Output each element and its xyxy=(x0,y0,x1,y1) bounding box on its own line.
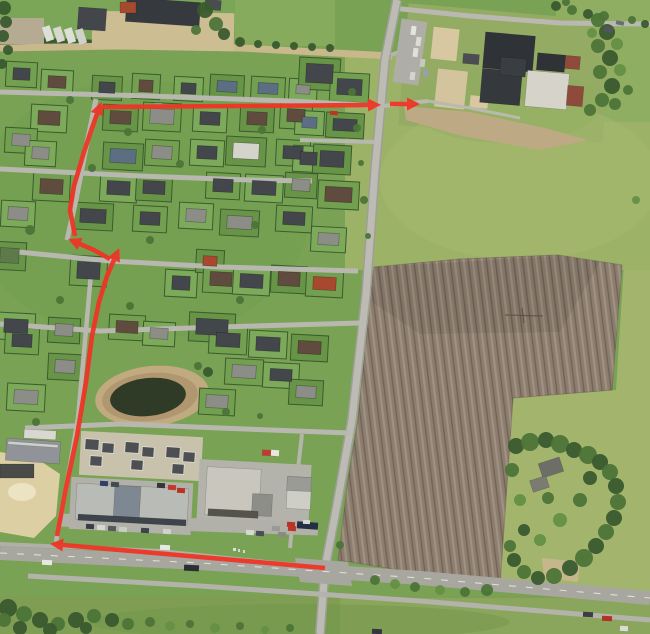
warehouse-office xyxy=(24,429,56,440)
house xyxy=(292,179,311,192)
office-east-roof xyxy=(287,476,312,491)
tree xyxy=(126,302,134,310)
tree xyxy=(595,93,609,107)
tree xyxy=(105,613,119,627)
school-red-1 xyxy=(564,55,580,69)
house xyxy=(320,150,345,167)
tree xyxy=(16,606,32,622)
tree xyxy=(286,624,294,632)
vehicle xyxy=(157,483,165,488)
tree xyxy=(583,471,597,485)
house xyxy=(296,85,310,95)
tree xyxy=(614,64,626,76)
house xyxy=(186,208,207,222)
school-shed xyxy=(463,53,480,64)
school-block-mid xyxy=(499,57,526,77)
house xyxy=(233,142,260,159)
tree xyxy=(348,88,356,96)
tree xyxy=(145,617,155,627)
house xyxy=(296,385,317,398)
tree xyxy=(272,41,280,49)
tree xyxy=(194,362,202,370)
tree xyxy=(370,575,380,585)
vehicle xyxy=(111,482,119,487)
school-block-white xyxy=(525,70,570,110)
tree xyxy=(176,160,184,168)
tree xyxy=(505,463,519,477)
tree xyxy=(623,85,633,95)
house xyxy=(256,336,281,351)
house xyxy=(139,80,154,93)
house xyxy=(206,394,229,408)
house xyxy=(313,276,337,290)
tree xyxy=(507,553,521,567)
aerial-photo xyxy=(0,0,650,634)
house xyxy=(172,276,191,291)
cabin xyxy=(102,443,115,454)
tree xyxy=(514,494,526,506)
house xyxy=(200,111,221,125)
sand-pit-bright xyxy=(8,483,36,501)
tree xyxy=(534,534,546,546)
street-b-conn xyxy=(300,140,375,142)
vehicle xyxy=(238,549,240,552)
highway-junction xyxy=(295,558,352,586)
tree xyxy=(481,584,493,596)
tree xyxy=(290,42,298,50)
house xyxy=(12,333,33,347)
house xyxy=(203,256,218,267)
house xyxy=(270,368,293,381)
house xyxy=(12,134,31,147)
school-block-ne xyxy=(536,53,565,72)
tree xyxy=(261,626,269,634)
cabin xyxy=(131,460,144,471)
vehicle xyxy=(119,527,127,532)
tree xyxy=(218,28,230,40)
tree xyxy=(25,225,35,235)
tree xyxy=(124,128,132,136)
tree xyxy=(353,124,361,132)
tree xyxy=(583,9,593,19)
house xyxy=(306,63,334,83)
tree xyxy=(236,622,244,630)
tree xyxy=(186,620,194,628)
tree xyxy=(257,413,263,419)
vehicle xyxy=(108,526,116,531)
house xyxy=(232,364,257,378)
tree xyxy=(251,221,259,229)
tree xyxy=(609,98,621,110)
house xyxy=(0,248,19,264)
tree xyxy=(575,549,593,567)
house xyxy=(227,215,253,229)
tree xyxy=(326,44,334,52)
house xyxy=(13,68,31,81)
tree xyxy=(504,540,516,552)
tree xyxy=(553,513,567,527)
vehicle xyxy=(160,545,170,551)
tree xyxy=(628,16,636,24)
tree xyxy=(611,38,623,50)
tree xyxy=(32,418,40,426)
vehicle xyxy=(168,485,176,490)
house xyxy=(302,117,318,129)
vehicle xyxy=(100,481,108,486)
tree xyxy=(632,196,640,204)
house xyxy=(181,83,197,95)
aerial-map-screenshot xyxy=(0,0,650,634)
tree xyxy=(146,236,154,244)
house xyxy=(150,108,175,124)
vehicle xyxy=(246,530,254,535)
tree xyxy=(591,39,605,53)
house xyxy=(80,208,107,223)
tree xyxy=(88,164,96,172)
barn-small xyxy=(77,7,106,31)
tree xyxy=(606,510,622,526)
vehicle xyxy=(278,532,286,538)
house xyxy=(55,359,76,373)
house xyxy=(283,211,306,225)
tree xyxy=(602,50,618,66)
tree xyxy=(365,233,371,239)
house xyxy=(300,152,318,166)
vehicle xyxy=(256,531,264,536)
vehicle xyxy=(177,488,185,493)
tree xyxy=(567,5,577,15)
vehicle xyxy=(372,629,382,634)
house xyxy=(278,271,301,286)
house xyxy=(298,340,322,354)
tree xyxy=(518,524,530,536)
tree xyxy=(562,560,578,576)
cabin xyxy=(85,439,100,451)
tree xyxy=(197,2,213,18)
house xyxy=(150,328,169,340)
tree xyxy=(66,96,74,104)
tree xyxy=(599,24,615,40)
tree xyxy=(358,160,364,166)
house xyxy=(240,273,264,288)
tree xyxy=(602,464,618,480)
house xyxy=(252,180,277,195)
tree xyxy=(588,538,604,554)
tree xyxy=(410,582,420,592)
tree xyxy=(573,493,587,507)
house xyxy=(55,324,74,337)
vehicle xyxy=(141,528,149,533)
house xyxy=(258,82,279,94)
cabin xyxy=(90,456,103,467)
vehicle xyxy=(86,524,94,529)
dark-yard xyxy=(0,464,34,478)
cabin xyxy=(183,452,196,463)
tree xyxy=(222,408,230,416)
tree xyxy=(551,1,561,11)
house xyxy=(38,110,61,125)
house xyxy=(110,110,132,124)
tree xyxy=(608,478,624,494)
house xyxy=(143,180,166,194)
house xyxy=(32,147,50,160)
vehicle xyxy=(42,560,52,566)
cabin xyxy=(166,447,181,459)
cabin xyxy=(172,464,185,475)
playground-sand-1 xyxy=(430,27,459,62)
vehicle xyxy=(97,525,105,530)
tree xyxy=(258,126,266,134)
tree xyxy=(165,621,175,631)
tree xyxy=(0,16,12,28)
house xyxy=(197,145,218,159)
tree xyxy=(360,196,368,204)
house xyxy=(152,145,173,159)
house xyxy=(247,111,268,125)
cabin xyxy=(125,442,140,454)
school-red-2 xyxy=(566,85,584,106)
vehicle xyxy=(583,612,593,618)
tree xyxy=(254,40,262,48)
house xyxy=(216,332,241,347)
top-mid-field xyxy=(235,0,335,46)
tree xyxy=(460,587,470,597)
vehicle xyxy=(272,526,280,532)
house xyxy=(40,178,64,194)
house xyxy=(140,211,161,225)
tree xyxy=(587,28,597,38)
house xyxy=(48,76,67,89)
tree xyxy=(3,45,13,55)
tree xyxy=(546,568,562,584)
tree xyxy=(87,609,101,623)
tree xyxy=(542,492,554,504)
tree xyxy=(235,37,245,47)
house xyxy=(110,148,137,163)
tree xyxy=(584,104,596,116)
farm-red-roof xyxy=(120,2,136,13)
vehicle xyxy=(243,550,245,553)
cabin xyxy=(142,447,155,458)
vehicle xyxy=(303,520,310,524)
tree xyxy=(236,296,244,304)
tree xyxy=(531,571,545,585)
route-top-east xyxy=(102,105,368,107)
tree xyxy=(604,78,620,94)
tree xyxy=(122,618,134,630)
tree xyxy=(390,579,400,589)
vehicle xyxy=(271,450,279,456)
house xyxy=(116,320,139,333)
tree xyxy=(593,65,607,79)
vehicle xyxy=(620,626,628,631)
house xyxy=(213,178,234,192)
house xyxy=(8,206,29,220)
house xyxy=(325,186,353,202)
tree xyxy=(521,433,539,451)
house xyxy=(4,318,29,333)
tree xyxy=(517,565,531,579)
house xyxy=(107,180,131,195)
vehicle xyxy=(184,565,199,572)
vehicle xyxy=(233,548,236,551)
tree xyxy=(80,622,92,634)
house xyxy=(77,261,101,279)
tree xyxy=(191,25,201,35)
house xyxy=(210,271,233,286)
tree xyxy=(610,494,626,510)
tree xyxy=(598,524,614,540)
tree xyxy=(435,585,445,595)
tree xyxy=(641,20,649,28)
tree xyxy=(56,296,64,304)
vehicle xyxy=(163,529,171,534)
tree xyxy=(599,11,609,21)
vehicle xyxy=(330,111,338,116)
tree xyxy=(308,43,316,51)
house xyxy=(14,389,39,404)
house xyxy=(217,80,238,92)
vehicle xyxy=(602,616,612,622)
house xyxy=(99,82,116,94)
tree xyxy=(336,541,344,549)
tree xyxy=(203,367,213,377)
vehicle xyxy=(288,526,296,531)
tree xyxy=(210,623,220,633)
house xyxy=(318,232,340,245)
